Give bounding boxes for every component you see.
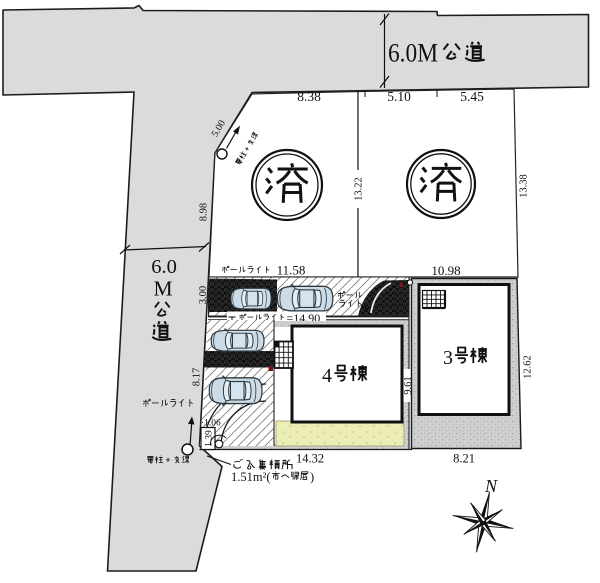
svg-text:N: N bbox=[484, 476, 498, 496]
svg-text:3.00: 3.00 bbox=[198, 286, 209, 304]
svg-text:8.98: 8.98 bbox=[199, 203, 210, 221]
svg-text:10.98: 10.98 bbox=[431, 263, 460, 278]
svg-text:6.0: 6.0 bbox=[151, 256, 177, 278]
svg-text:11.58: 11.58 bbox=[277, 263, 306, 278]
svg-text:4: 4 bbox=[322, 365, 332, 387]
svg-text:5.45: 5.45 bbox=[460, 89, 484, 104]
svg-text:13.38: 13.38 bbox=[519, 174, 530, 198]
svg-text:6.0M: 6.0M bbox=[388, 39, 438, 68]
svg-text:8.38: 8.38 bbox=[297, 89, 321, 104]
svg-text:M: M bbox=[153, 277, 172, 301]
svg-text:3: 3 bbox=[443, 347, 453, 369]
svg-text:): ) bbox=[310, 470, 314, 484]
svg-text:13.22: 13.22 bbox=[354, 177, 365, 201]
svg-text:1.39: 1.39 bbox=[205, 430, 215, 447]
svg-text:12.62: 12.62 bbox=[523, 355, 534, 379]
svg-text:8.21: 8.21 bbox=[453, 452, 475, 466]
svg-text:1.51m²(: 1.51m²( bbox=[231, 470, 271, 484]
svg-text:5.10: 5.10 bbox=[387, 89, 411, 104]
svg-text:14.32: 14.32 bbox=[296, 452, 324, 466]
svg-text:8.17: 8.17 bbox=[192, 368, 203, 386]
